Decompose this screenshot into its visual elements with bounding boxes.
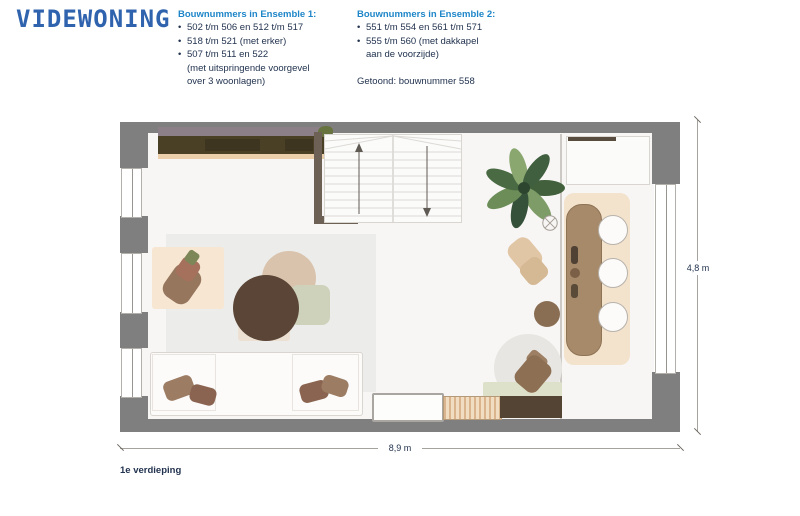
side-table: [372, 393, 444, 422]
closet-top-strip: [158, 127, 333, 136]
dining-chair: [598, 215, 628, 245]
bookshelf: [443, 396, 502, 420]
dimension-height-label: 4,8 m: [681, 261, 715, 275]
floor-level-label: 1e verdieping: [120, 465, 181, 476]
window-left-1: [121, 168, 142, 218]
page: VIDEWONING Bouwnummers in Ensemble 1: •5…: [0, 0, 800, 516]
window-left-2: [121, 253, 142, 314]
pouf: [534, 301, 560, 327]
closet-door: [285, 139, 313, 151]
dining-chair: [598, 302, 628, 332]
stair-wall: [314, 132, 322, 223]
table-decor: [570, 268, 580, 278]
dining-table: [566, 204, 602, 356]
closet-door: [205, 139, 260, 151]
wall-right-pier: [652, 122, 680, 184]
dimension-line-vertical: [697, 120, 698, 432]
wall-right-pier: [652, 372, 680, 432]
sideboard: [500, 396, 562, 418]
wall-left-pier: [120, 396, 148, 432]
wall-left-pier: [120, 216, 148, 253]
dining-chair: [598, 258, 628, 288]
coffee-table-dark: [233, 275, 299, 341]
window-right: [655, 184, 676, 374]
table-decor: [571, 284, 578, 298]
wall-left-pier: [120, 312, 148, 348]
window-left-3: [121, 348, 142, 398]
staircase-icon: [324, 134, 462, 223]
dimension-width-label: 8,9 m: [378, 441, 422, 455]
ventilation-icon: [541, 214, 559, 232]
void-opening: [566, 136, 650, 185]
table-decor: [571, 246, 578, 264]
closet-front-strip: [158, 154, 333, 159]
wall-shelf: [568, 137, 616, 141]
floor-plan: 4,8 m 8,9 m 1e verdieping: [0, 0, 800, 516]
wall-left-pier: [120, 122, 148, 168]
